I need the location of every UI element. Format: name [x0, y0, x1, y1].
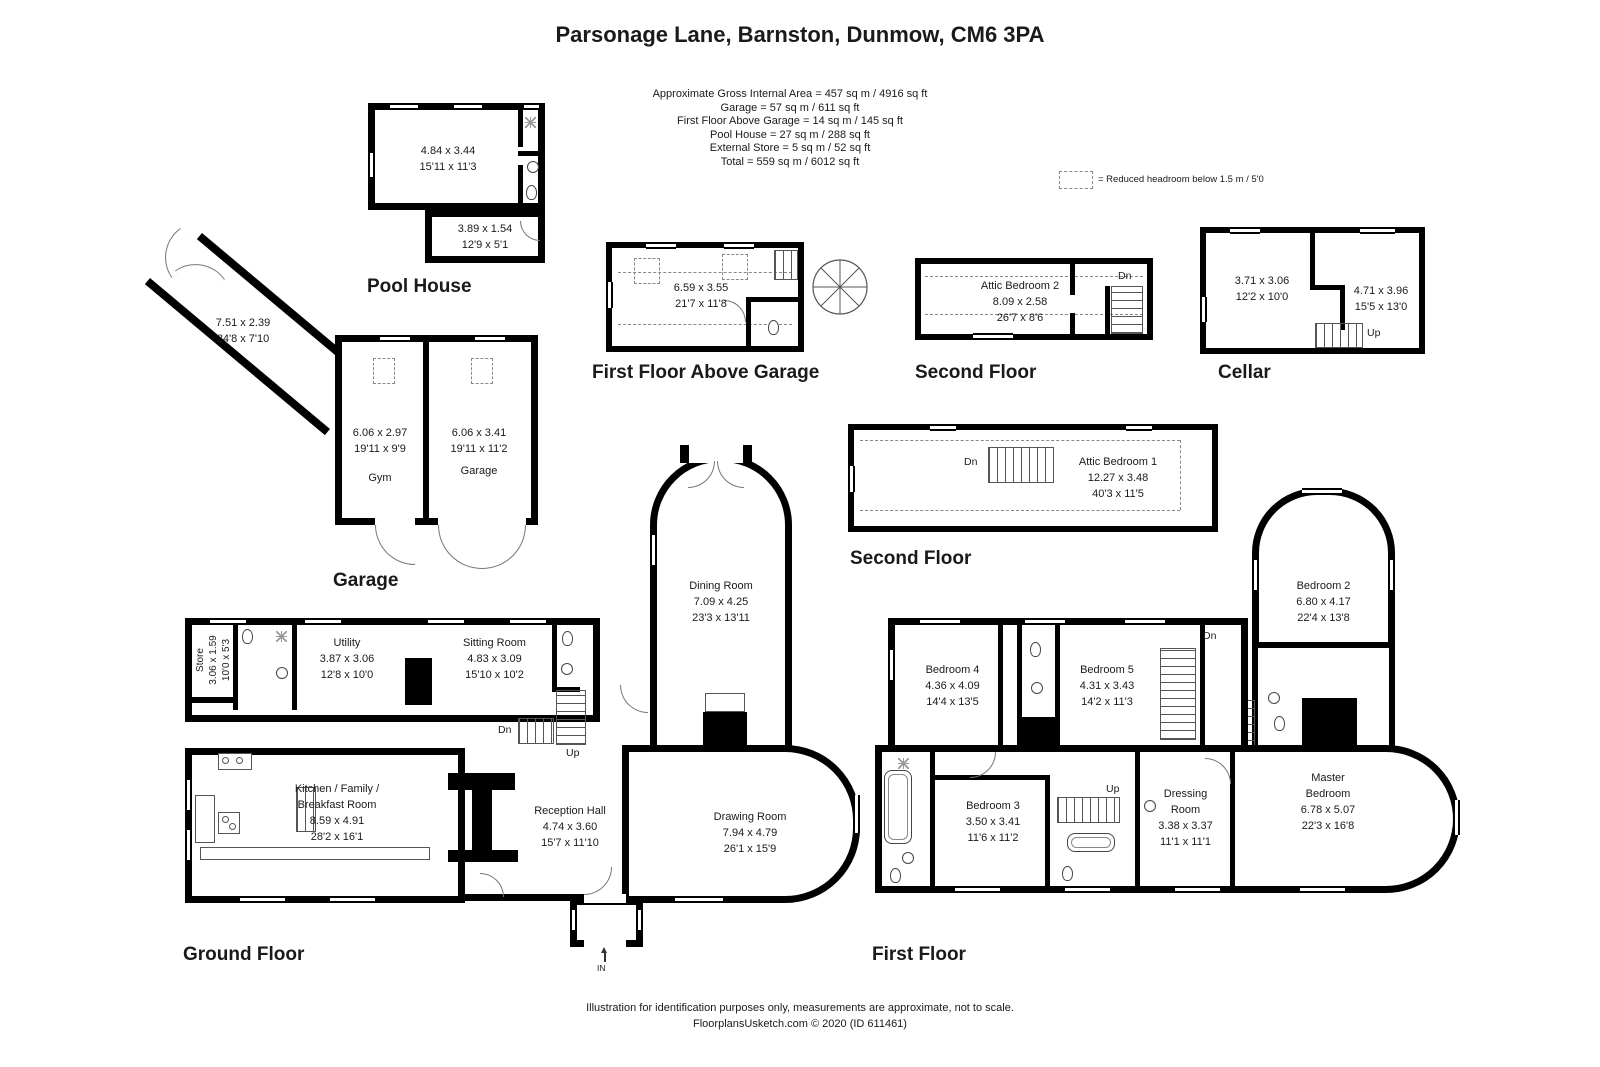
- stairs: [518, 718, 554, 744]
- partition-wall: [930, 752, 935, 886]
- window: [853, 795, 860, 833]
- window: [1065, 886, 1110, 893]
- window: [724, 242, 754, 249]
- window: [368, 153, 375, 177]
- room-dimensions-metric: 6.80 x 4.17: [1252, 594, 1395, 610]
- room-dimensions-imperial: 22'4 x 13'8: [1252, 610, 1395, 626]
- stairs: [1160, 648, 1196, 740]
- sink-icon: [276, 667, 288, 679]
- room-dimensions-imperial: 12'8 x 10'0: [292, 667, 402, 683]
- room-dimensions-imperial: 14'2 x 11'3: [1052, 694, 1162, 710]
- room-label: 3.71 x 3.06 4.71 x 3.96 12'2 x 10'0: [1212, 273, 1312, 305]
- stairs-direction-label: Dn: [1203, 630, 1216, 642]
- window: [570, 910, 577, 930]
- room-name: Bedroom 4: [895, 662, 1010, 678]
- dashed-headroom-line: [860, 440, 1180, 441]
- door-jamb: [743, 445, 752, 463]
- partition-wall: [518, 151, 540, 156]
- sink-icon: [561, 663, 573, 675]
- dashed-headroom-line: [618, 324, 792, 325]
- window: [930, 424, 956, 431]
- bathtub-icon: [884, 770, 912, 844]
- rooflight-dashed-box: [722, 254, 748, 280]
- room-label: 4.84 x 3.44 15'11 x 11'3: [378, 143, 518, 175]
- room-name: Store: [194, 623, 207, 697]
- room-dimensions-imperial: 10'0 x 5'3: [220, 623, 233, 697]
- room-label: Drawing Room 7.94 x 4.79 26'1 x 15'9: [660, 809, 840, 857]
- room-name: Kitchen / Family /: [227, 781, 447, 797]
- window: [454, 103, 482, 110]
- room-name: Dining Room: [650, 578, 792, 594]
- window: [1175, 886, 1220, 893]
- shower-icon: [898, 758, 909, 769]
- entrance-arrow-icon: [604, 952, 606, 962]
- kitchen-counter: [195, 795, 215, 843]
- chimney-breast: [472, 790, 492, 850]
- sink-icon: [1268, 692, 1280, 704]
- room-dimensions-imperial: 15'10 x 10'2: [432, 667, 557, 683]
- reduced-headroom-swatch: [1059, 171, 1093, 189]
- shower-icon: [276, 631, 287, 642]
- copyright-text: FloorplansUsketch.com © 2020 (ID 611461): [0, 1016, 1600, 1032]
- area-summary: Approximate Gross Internal Area = 457 sq…: [0, 88, 1580, 169]
- partition-wall: [233, 625, 238, 710]
- room-dimensions-imperial: 28'2 x 16'1: [227, 829, 447, 845]
- room-dimensions-metric: 4.84 x 3.44: [378, 143, 518, 159]
- room-dimensions-imperial: 14'4 x 13'5: [895, 694, 1010, 710]
- door-arc: [620, 685, 648, 713]
- wall: [145, 278, 330, 435]
- room-label: Bedroom 3 3.50 x 3.41 11'6 x 11'2: [938, 798, 1048, 846]
- floor-plan-first-floor: Bedroom 2 6.80 x 4.17 22'4 x 13'8 Up Bed…: [870, 470, 1480, 980]
- page-title: Parsonage Lane, Barnston, Dunmow, CM6 3P…: [0, 22, 1600, 48]
- stairs-direction-label: Dn: [498, 724, 511, 736]
- shower-icon: [525, 117, 536, 128]
- summary-line: First Floor Above Garage = 14 sq m / 145…: [0, 115, 1580, 129]
- window: [920, 618, 960, 625]
- summary-line: Approximate Gross Internal Area = 457 sq…: [0, 88, 1580, 102]
- stairs-direction-label: Dn: [1118, 270, 1131, 282]
- room-label: Reception Hall 4.74 x 3.60 15'7 x 11'10: [505, 803, 635, 851]
- floor-plan-ground-floor: Dining Room 7.09 x 4.25 23'3 x 13'11 Sto…: [180, 435, 880, 985]
- room-dimensions-metric: 4.31 x 3.43: [1052, 678, 1162, 694]
- room-dimensions-metric: 3.87 x 3.06: [292, 651, 402, 667]
- room-dimensions-metric: 4.71 x 3.96: [1340, 283, 1422, 299]
- door-arc: [584, 867, 612, 895]
- room-name: Utility: [292, 635, 402, 651]
- room-name: Bedroom 2: [1252, 578, 1395, 594]
- room-name: Room: [1138, 802, 1233, 818]
- room-dimensions-imperial: 21'7 x 11'8: [626, 296, 776, 312]
- floor-plan-first-floor-above-garage: 6.59 x 3.55 21'7 x 11'8: [606, 242, 886, 362]
- window: [675, 896, 723, 903]
- window: [1200, 297, 1207, 322]
- stairs: [556, 690, 586, 745]
- window: [330, 896, 375, 903]
- room-label: Bedroom 4 4.36 x 4.09 14'4 x 13'5: [895, 662, 1010, 710]
- window: [1300, 886, 1345, 893]
- sink-icon: [1031, 682, 1043, 694]
- room-dimensions-metric: 4.83 x 3.09: [432, 651, 557, 667]
- window: [1302, 488, 1342, 495]
- reduced-headroom-legend: = Reduced headroom below 1.5 m / 5'0: [1098, 174, 1264, 185]
- floor-plan-cellar: Up 3.71 x 3.06 4.71 x 3.96 12'2 x 10'0 4…: [1200, 227, 1435, 367]
- room-label: Sitting Room 4.83 x 3.09 15'10 x 10'2: [432, 635, 557, 683]
- window: [185, 780, 192, 810]
- window: [475, 335, 505, 342]
- window: [390, 103, 418, 110]
- room-dimensions-imperial: 24'8 x 7'10: [200, 331, 286, 347]
- room-name: Bedroom 3: [938, 798, 1048, 814]
- room-name: Master: [1248, 770, 1408, 786]
- window: [1125, 618, 1165, 625]
- window: [380, 335, 410, 342]
- room-dimensions-imperial: 15'5 x 13'0: [1340, 299, 1422, 315]
- first-floor-above-garage-label: First Floor Above Garage: [592, 362, 819, 384]
- room-dimensions-imperial: 15'7 x 11'10: [505, 835, 635, 851]
- room-label: Store 3.06 x 1.59 10'0 x 5'3: [194, 623, 233, 697]
- partition-wall: [935, 775, 1050, 780]
- chimney-breast: [448, 850, 518, 862]
- second-floor-garage-label: Second Floor: [915, 362, 1036, 384]
- summary-line: External Store = 5 sq m / 52 sq ft: [0, 142, 1580, 156]
- stairs: [1057, 797, 1120, 823]
- room-dimensions-imperial: 22'3 x 16'8: [1248, 818, 1408, 834]
- chimney-breast: [1018, 717, 1059, 745]
- room-dimensions-metric: 3.06 x 1.59: [207, 623, 220, 697]
- window: [973, 333, 1013, 340]
- room-dimensions-metric: 7.51 x 2.39: [200, 315, 286, 331]
- partition-wall: [552, 625, 557, 687]
- kitchen-counter: [200, 847, 430, 860]
- fireplace: [703, 712, 747, 747]
- room-dimensions-imperial: 15'11 x 11'3: [378, 159, 518, 175]
- window: [1453, 800, 1460, 835]
- room-dimensions-metric: 8.09 x 2.58: [945, 294, 1095, 310]
- entrance-label: IN: [597, 963, 606, 973]
- room-dimensions-metric: 3.38 x 3.37: [1138, 818, 1233, 834]
- partition-wall: [518, 109, 523, 147]
- toilet-icon: [1062, 866, 1073, 881]
- cellar-label: Cellar: [1218, 362, 1271, 384]
- chimney-breast: [448, 773, 515, 790]
- burner-icon: [236, 757, 243, 764]
- cupboard-icon: [774, 250, 798, 280]
- room-label: 7.51 x 2.39 24'8 x 7'10: [200, 315, 286, 347]
- toilet-icon: [1030, 642, 1041, 657]
- rooflight-dashed-box: [471, 358, 493, 384]
- room-label: Bedroom 2 6.80 x 4.17 22'4 x 13'8: [1252, 578, 1395, 626]
- window: [646, 242, 676, 249]
- room-label: 6.59 x 3.55 21'7 x 11'8: [626, 280, 776, 312]
- disclaimer-text: Illustration for identification purposes…: [0, 1000, 1600, 1016]
- window: [650, 535, 657, 565]
- stairs: [1315, 323, 1363, 348]
- burner-icon: [222, 757, 229, 764]
- ground-floor-label: Ground Floor: [183, 944, 304, 966]
- floor-plan-second-floor-garage: Dn Attic Bedroom 2 8.09 x 2.58 26'7 x 8'…: [915, 258, 1165, 353]
- window: [428, 618, 464, 625]
- room-name: Bedroom 5: [1052, 662, 1162, 678]
- partition-wall: [190, 697, 233, 703]
- toilet-icon: [890, 868, 901, 883]
- room-name: Breakfast Room: [227, 797, 447, 813]
- room-label: Dressing Room 3.38 x 3.37 11'1 x 11'1: [1138, 786, 1233, 850]
- sink-icon: [902, 852, 914, 864]
- room-name: Drawing Room: [660, 809, 840, 825]
- room-dimensions-metric: 7.94 x 4.79: [660, 825, 840, 841]
- summary-line: Total = 559 sq m / 6012 sq ft: [0, 156, 1580, 170]
- room-dimensions-metric: 6.59 x 3.55: [626, 280, 776, 296]
- room-label: 4.71 x 3.96 15'5 x 13'0: [1340, 283, 1422, 315]
- room-label: Dining Room 7.09 x 4.25 23'3 x 13'11: [650, 578, 792, 626]
- room-dimensions-metric: 3.50 x 3.41: [938, 814, 1048, 830]
- stairs-direction-label: Up: [1367, 327, 1380, 339]
- room-label: Kitchen / Family / Breakfast Room 8.59 x…: [227, 781, 447, 845]
- room-dimensions-metric: 4.74 x 3.60: [505, 819, 635, 835]
- summary-line: Pool House = 27 sq m / 288 sq ft: [0, 129, 1580, 143]
- first-floor-label: First Floor: [872, 944, 966, 966]
- summary-line: Garage = 57 sq m / 611 sq ft: [0, 102, 1580, 116]
- chimney-breast: [405, 658, 432, 705]
- floorplan-canvas: Parsonage Lane, Barnston, Dunmow, CM6 3P…: [0, 0, 1600, 1067]
- toilet-icon: [526, 185, 537, 200]
- stairs-direction-label: Up: [1106, 783, 1119, 795]
- room-dimensions-metric: 6.78 x 5.07: [1248, 802, 1408, 818]
- room-dimensions-imperial: 11'1 x 11'1: [1138, 834, 1233, 850]
- dashed-headroom-line: [925, 276, 1143, 277]
- window: [305, 618, 341, 625]
- room-label: Bedroom 5 4.31 x 3.43 14'2 x 11'3: [1052, 662, 1162, 710]
- room-label: Attic Bedroom 2 8.09 x 2.58 26'7 x 8'6: [945, 278, 1095, 326]
- footer: Illustration for identification purposes…: [0, 1000, 1600, 1032]
- partition-wall: [1230, 752, 1235, 886]
- door-opening: [584, 894, 626, 903]
- stairs-direction-label: Up: [566, 747, 579, 759]
- window: [1230, 227, 1260, 234]
- toilet-icon: [562, 631, 573, 646]
- room-dimensions-metric: 7.09 x 4.25: [650, 594, 792, 610]
- partition-wall: [1105, 286, 1110, 334]
- room-dimensions-imperial: 26'7 x 8'6: [945, 310, 1095, 326]
- window: [185, 830, 192, 860]
- stairs-direction-label: Dn: [964, 456, 977, 468]
- room-name: Reception Hall: [505, 803, 635, 819]
- toilet-icon: [242, 629, 253, 644]
- sink-icon: [527, 161, 539, 173]
- door-arc: [480, 873, 504, 897]
- partition-wall: [1200, 624, 1205, 749]
- spiral-staircase-icon: [811, 258, 869, 316]
- window: [510, 618, 546, 625]
- room-name: Dressing: [1138, 786, 1233, 802]
- room-name: Bedroom: [1248, 786, 1408, 802]
- room-dimensions-imperial: 11'6 x 11'2: [938, 830, 1048, 846]
- chimney-breast: [1302, 698, 1357, 748]
- bathtub-icon: [1067, 833, 1115, 852]
- room-name: Attic Bedroom 1: [1038, 454, 1198, 470]
- toilet-icon: [1274, 716, 1285, 731]
- window: [524, 103, 539, 110]
- window: [1360, 227, 1395, 234]
- toilet-icon: [768, 320, 779, 335]
- window: [1126, 424, 1152, 431]
- window: [240, 896, 285, 903]
- window: [636, 910, 643, 930]
- window: [955, 886, 1000, 893]
- partition-wall: [518, 165, 523, 205]
- room-label: Master Bedroom 6.78 x 5.07 22'3 x 16'8: [1248, 770, 1408, 834]
- hearth: [705, 693, 745, 712]
- room-dimensions-imperial: 26'1 x 15'9: [660, 841, 840, 857]
- room-name: Attic Bedroom 2: [945, 278, 1095, 294]
- room-dimensions-metric: 3.71 x 3.06: [1212, 273, 1312, 289]
- room-dimensions-imperial: 23'3 x 13'11: [650, 610, 792, 626]
- window: [606, 282, 613, 308]
- room-dimensions-metric: 8.59 x 4.91: [227, 813, 447, 829]
- room-name: Sitting Room: [432, 635, 557, 651]
- rooflight-dashed-box: [373, 358, 395, 384]
- stairs: [1111, 286, 1143, 334]
- window: [888, 650, 895, 680]
- room-dimensions-imperial: 12'2 x 10'0: [1212, 289, 1312, 305]
- room-dimensions-metric: 4.36 x 4.09: [895, 678, 1010, 694]
- room-label: Utility 3.87 x 3.06 12'8 x 10'0: [292, 635, 402, 683]
